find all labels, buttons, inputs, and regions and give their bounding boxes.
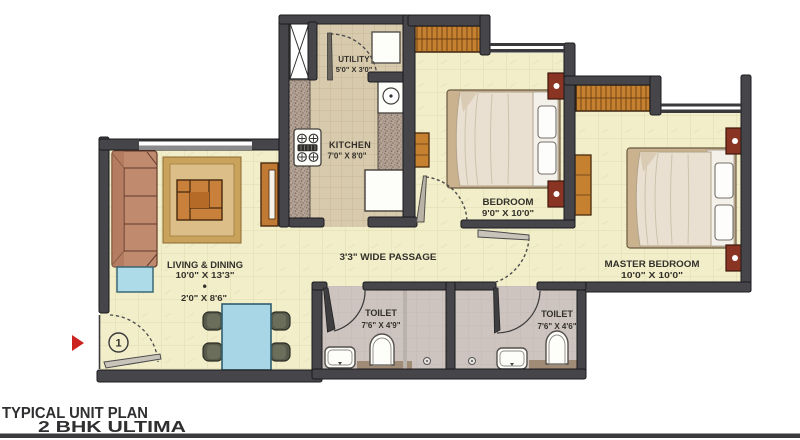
svg-text:2'0" X 8'6": 2'0" X 8'6" [181,294,227,303]
svg-text:TOILET: TOILET [365,308,397,318]
svg-text:3'3" WIDE PASSAGE: 3'3" WIDE PASSAGE [340,252,437,263]
svg-text:1: 1 [115,338,121,350]
svg-text:9'0" X 10'0": 9'0" X 10'0" [482,209,534,218]
svg-text:KITCHEN: KITCHEN [329,140,371,150]
svg-text:7'6" X 4'9": 7'6" X 4'9" [362,321,401,330]
svg-text:LIVING & DINING: LIVING & DINING [167,260,243,270]
svg-text:10'0" X 10'0": 10'0" X 10'0" [621,271,683,280]
svg-text:UTILITY: UTILITY [338,55,370,64]
svg-text:5'0" X 3'0": 5'0" X 3'0" [336,65,373,74]
svg-text:7'0" X 8'0": 7'0" X 8'0" [328,152,367,161]
svg-text:MASTER BEDROOM: MASTER BEDROOM [605,259,700,269]
svg-text:10'0" X 13'3": 10'0" X 13'3" [176,271,235,280]
svg-text:TOILET: TOILET [541,309,573,319]
svg-text:7'6" X 4'6": 7'6" X 4'6" [538,322,577,331]
svg-text:BEDROOM: BEDROOM [483,197,534,207]
svg-text:2 BHK ULTIMA: 2 BHK ULTIMA [38,419,187,436]
